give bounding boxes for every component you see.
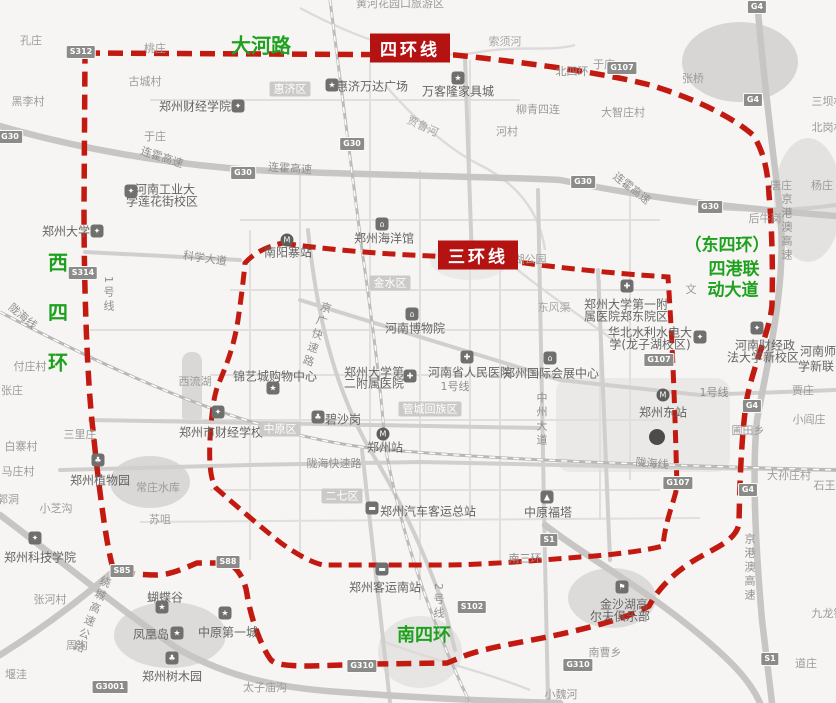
bus-icon: ▬ [376,563,389,576]
map-label: 中原福塔 [524,504,572,521]
map-label: 郑州站 [367,439,403,456]
map-label: 东风渠 [538,299,571,315]
road-shield: G310 [346,659,377,673]
bigdot-icon [649,429,665,445]
road-shield: G4 [742,399,762,413]
map-label: 孔庄 [20,32,42,48]
metro-icon: M [281,234,294,247]
map-label: 大孙庄村 [767,467,811,483]
road-shield: G107 [643,353,674,367]
map-label: 河南财经政 [735,337,795,354]
road-shield: G107 [606,61,637,75]
map-label: 圃田乡 [732,422,765,438]
road-shield: G107 [662,476,693,490]
map-label: 1号线 [441,378,470,394]
map-label: 小芝沟 [40,500,73,516]
map-label: 京港澳高速 [778,193,794,263]
map-label: 黑李村 [12,93,45,109]
map-label: 北四环 [556,63,589,79]
map-label: 1号线 [700,384,729,400]
map-label: 小魏河 [545,686,578,702]
map-label: 唐庄 [770,177,792,193]
metro-icon: M [377,428,390,441]
map-label: 贾庄 [792,382,814,398]
map-label: 河南省人民医院 [428,364,512,381]
map-label: 苏咀 [149,511,171,527]
map-label: 碧沙岗 [325,411,361,428]
map-label: 白寨村 [5,438,38,454]
district-badge: 惠济区 [270,82,311,97]
star-icon: ★ [171,627,184,640]
road-shield: S314 [68,266,98,280]
school-icon: ✦ [91,225,104,238]
map-label: 郑州东站 [639,404,687,421]
museum-icon: ⌂ [376,218,389,231]
map-label: 张庄 [1,382,23,398]
map-label: 京广快速路 [298,299,335,371]
road-shield: G30 [230,166,256,180]
map-label: 金沙湖高 [600,596,648,613]
road-shield: G4 [747,0,767,14]
school-icon: ✦ [29,532,42,545]
tree-icon: ♣ [312,411,325,424]
road-shield: G30 [570,175,596,189]
road-shield: S88 [216,555,241,569]
map-label: 2号线 [430,583,446,621]
map-label: 凤凰岛 [133,626,169,643]
road-shield: S1 [760,652,779,666]
hospital-icon: ✚ [621,280,634,293]
map-label: 张河村 [34,591,67,607]
map-label: 桃庄 [144,40,166,56]
road-shield: S85 [110,564,135,578]
star-icon: ★ [156,601,169,614]
map-label: 法大学新校区 [727,349,799,366]
map-label: 古城村 [129,73,162,89]
map-label: 郑州客运南站 [349,579,421,596]
map-label: 于庄 [144,128,166,144]
map-label: 京港澳高速 [741,533,757,603]
star-icon: ★ [326,79,339,92]
third-ring-badge: 三环线 [438,241,518,270]
road-shield: G30 [0,130,23,144]
map-label: 尔夫俱乐部 [590,608,650,625]
map-label: 九龙镇 [812,605,836,621]
map-label: 大智庄村 [601,104,645,120]
museum-icon: ⌂ [544,352,557,365]
metro-icon: M [657,389,670,402]
map-label: 学新联 [798,358,834,375]
map-label: 郑州大学第 [344,364,404,381]
map-label: 陇海快速路 [307,455,362,471]
road-shield: G4 [743,93,763,107]
district-badge: 金水区 [370,276,411,291]
map-label: 中原第一城 [198,624,258,641]
star-icon: ★ [219,607,232,620]
map-label: 郑州大学 [42,223,90,240]
map-label: 郑州植物园 [70,472,130,489]
map-label: 郭洞 [0,491,19,507]
tree-icon: ♣ [166,652,179,665]
map-label: 堰洼 [5,666,27,682]
fourth-ring-badge: 四环线 [370,34,450,63]
map-label: 学(龙子湖校区) [609,336,690,353]
map-label: 万客隆家具城 [422,83,494,100]
map-label: 河南博物院 [385,320,445,337]
star-icon: ★ [267,382,280,395]
map-label: 惠济万达广场 [336,78,408,95]
district-badge: 二七区 [322,489,363,504]
map-label: 中州大道 [533,392,549,448]
map-label: 北岗村 [812,119,836,135]
map-label: 1号线 [100,276,116,314]
map-label: 郑州财经学院 [159,98,231,115]
east-fourth-ring-label-line1: （东四环） [685,231,770,256]
east-fourth-ring-label-line3: 动大道 [708,276,759,301]
road-shield: S102 [457,600,487,614]
road-shield: G30 [697,200,723,214]
map-label: 常庄水库 [136,479,180,495]
school-icon: ✦ [694,331,707,344]
road-shield: G4 [738,483,758,497]
map-label: 郑州汽车客运总站 [380,503,476,520]
map-label: 郑州国际会展中心 [503,365,599,382]
map-label: 郑州海洋馆 [354,230,414,247]
map-label: 道庄 [795,655,817,671]
museum-icon: ⌂ [406,308,419,321]
map-label: 小阎庄 [793,411,826,427]
map-label: 华北水利水电大 [608,324,692,341]
school-icon: ✦ [751,322,764,335]
hospital-icon: ✚ [461,351,474,364]
school-icon: ✦ [212,406,225,419]
map-label: 黄河花园口旅游区 [356,0,444,11]
map-label: 马庄村 [2,463,35,479]
road-shield: G3001 [92,680,129,694]
map-label: 贾鲁河 [405,112,442,140]
map-label: 绕城高速公路 [68,573,114,657]
map-label: 郑州科技学院 [4,549,76,566]
map-label: 周沟 [66,637,88,653]
map-label: 连霍高速 [139,143,186,172]
school-icon: ✦ [125,185,138,198]
map-label: 连霍高速 [267,158,312,177]
road-shield: S1 [539,533,558,547]
map-label: 属医院郑东院区 [584,308,668,325]
road-shield: G30 [339,137,365,151]
dahe-road-label: 大河路 [231,30,291,59]
road-shield: G310 [562,658,593,672]
tree-icon: ♣ [92,454,105,467]
district-badge: 中原区 [260,422,301,437]
map-label: 郑州大学第一附 [584,296,668,313]
map-label: 郑州树木园 [142,668,202,685]
south-fourth-ring-label: 南四环 [397,621,451,647]
map-label: 三里庄 [64,426,97,442]
bus-icon: ▬ [366,502,379,515]
west-fourth-ring-label: 西四环 [43,252,72,402]
map-label: 三坝村 [812,93,836,109]
map-label: 西流湖 [179,373,212,389]
zhengzhou-ring-road-map[interactable]: 黄河花园口旅游区孔庄桃庄古城村黑李村于庄于庄河村柳青四连张桥大智庄村三坝村北岗村… [0,0,836,703]
map-label: 陇海线 [635,454,669,473]
map-label: 张桥 [682,70,704,86]
map-label: 陇海线 [5,299,41,332]
hospital-icon: ✚ [404,370,417,383]
tower-icon: ▲ [541,491,554,504]
map-label: 湖公园 [514,251,547,267]
map-label: 连霍高速 [610,168,655,208]
map-label: 南曹乡 [589,644,622,660]
map-label: 后牛岗 [749,210,782,226]
map-label: 太子庙沟 [243,679,287,695]
map-label: 文 [686,281,697,297]
map-label: 柳青四连 [516,101,560,117]
map-label: 杨庄 [811,177,833,193]
map-labels-layer: 黄河花园口旅游区孔庄桃庄古城村黑李村于庄于庄河村柳青四连张桥大智庄村三坝村北岗村… [0,0,836,703]
star-icon: ★ [452,72,465,85]
district-badge: 管城回族区 [399,402,462,417]
map-label: 科学大道 [182,247,228,269]
map-label: 石王村 [814,477,836,493]
map-label: 二附属医院 [344,375,404,392]
map-label: 河村 [496,123,518,139]
map-label: 郑州市财经学校 [179,424,263,441]
map-label: 南三环 [509,550,542,566]
road-shield: S312 [66,45,96,59]
map-label: 河南工业大 [135,181,195,198]
map-label: 索须河 [489,33,522,49]
map-label: 河南师 [800,343,836,360]
school-icon: ✦ [232,100,245,113]
golf-icon: ⚑ [616,581,629,594]
